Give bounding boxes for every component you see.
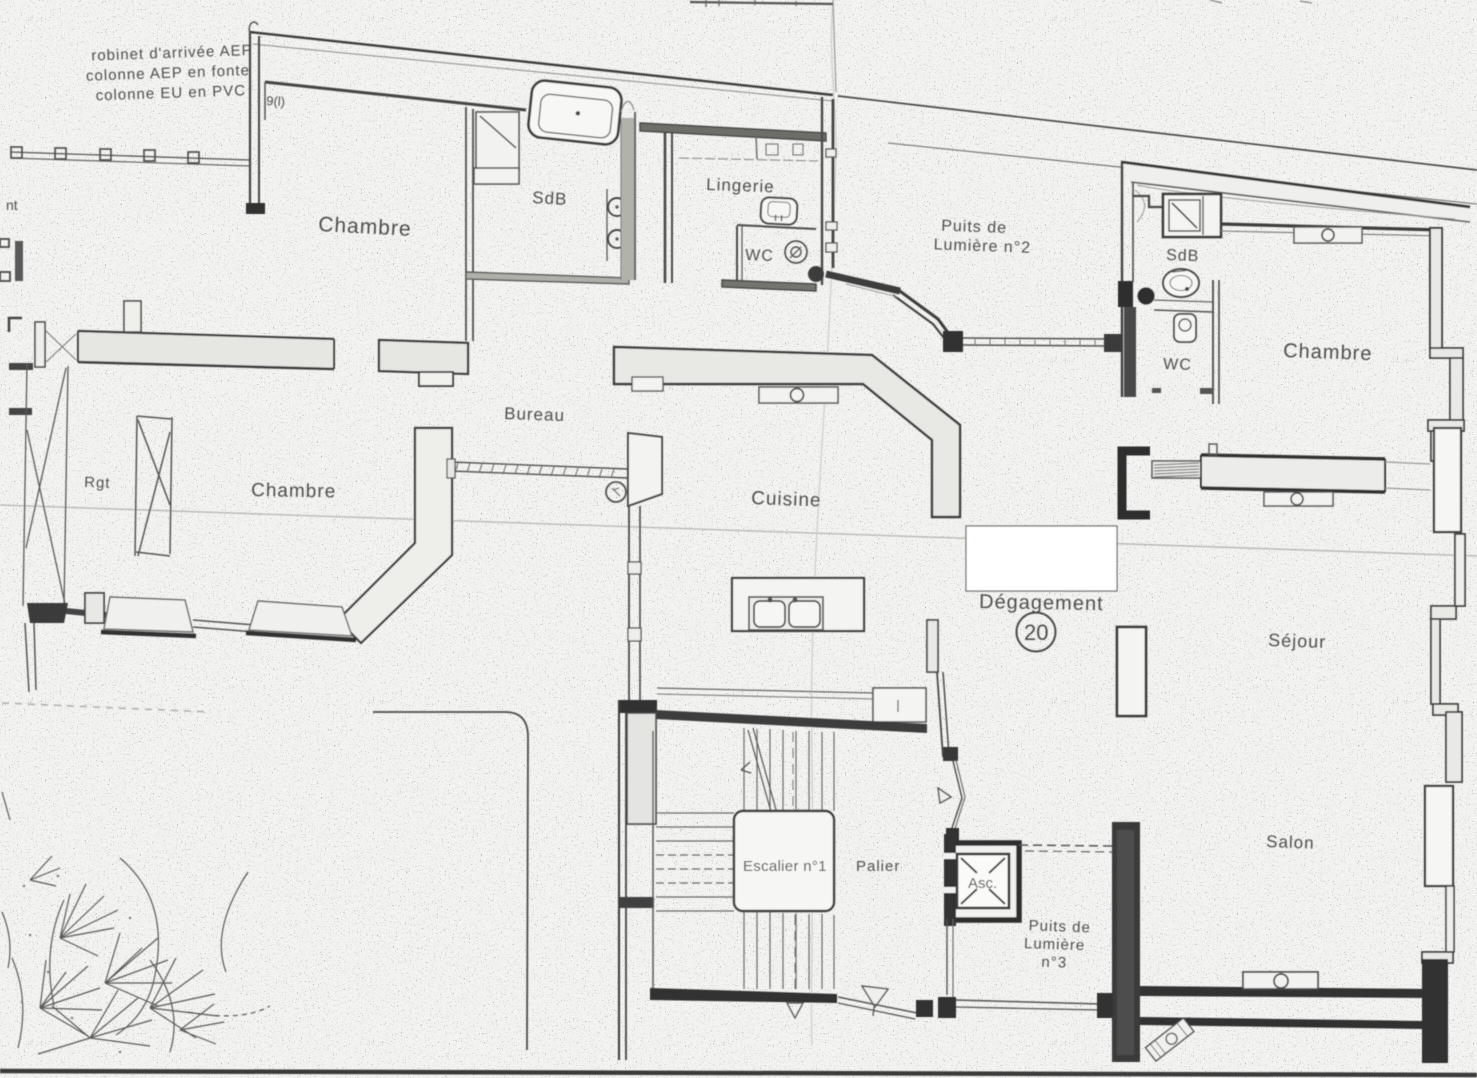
svg-text:Bureau: Bureau <box>504 404 565 425</box>
svg-text:nt: nt <box>6 197 18 213</box>
svg-text:n°3: n°3 <box>1041 954 1067 972</box>
svg-text:Puits de: Puits de <box>1028 917 1091 936</box>
svg-text:20: 20 <box>1024 620 1048 645</box>
svg-text:WC: WC <box>1163 356 1192 374</box>
svg-text:Chambre: Chambre <box>1283 340 1373 365</box>
svg-text:Lumière: Lumière <box>1024 935 1086 954</box>
svg-text:Escalier n°1: Escalier n°1 <box>743 858 827 875</box>
svg-text:SdB: SdB <box>1166 247 1200 265</box>
svg-text:Puits de: Puits de <box>941 218 1007 237</box>
svg-text:Chambre: Chambre <box>318 213 412 241</box>
svg-text:9(l): 9(l) <box>266 93 286 109</box>
svg-text:Palier: Palier <box>856 858 900 875</box>
svg-text:WC: WC <box>745 247 774 265</box>
svg-text:Lumière n°2: Lumière n°2 <box>933 236 1031 256</box>
svg-text:Séjour: Séjour <box>1268 630 1327 652</box>
svg-text:SdB: SdB <box>532 188 568 209</box>
svg-text:Salon: Salon <box>1266 832 1315 853</box>
svg-text:Lingerie: Lingerie <box>706 175 775 196</box>
svg-text:Asc.: Asc. <box>968 875 997 892</box>
svg-text:Chambre: Chambre <box>251 480 337 502</box>
svg-text:Cuisine: Cuisine <box>751 488 822 511</box>
svg-text:Rgt: Rgt <box>84 474 111 492</box>
svg-text:Dégagement: Dégagement <box>979 591 1104 615</box>
